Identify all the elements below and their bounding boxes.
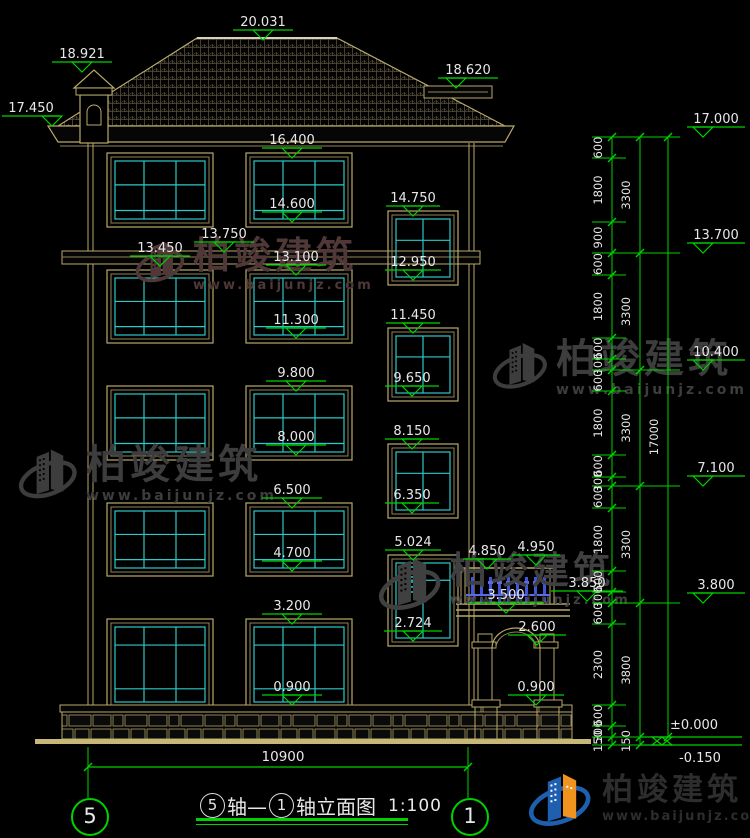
- drawing-title: 5 轴— 1 轴立面图 1:100: [198, 791, 442, 820]
- porch-arch: [492, 628, 540, 648]
- rect: [250, 274, 348, 339]
- window: [246, 153, 352, 227]
- title-seg1: 轴—: [227, 791, 267, 820]
- pier-cap: [534, 700, 562, 707]
- window: [107, 619, 213, 710]
- rect: [246, 503, 352, 576]
- ground-line: [35, 739, 591, 744]
- chimney-cap-roof: [74, 70, 114, 88]
- stair-door: [388, 555, 458, 646]
- window: [107, 153, 213, 227]
- arch-impost: [534, 642, 558, 648]
- rect: [107, 386, 213, 460]
- pier-pedestal: [475, 707, 497, 739]
- window: [107, 386, 213, 460]
- window: [246, 503, 352, 576]
- axis-bubble-1: 1: [451, 798, 489, 836]
- axis-bubble-5: 5: [71, 798, 109, 836]
- rect: [107, 153, 213, 227]
- title-axis-left: 5: [200, 793, 225, 818]
- rect: [250, 623, 348, 706]
- small-window: [388, 328, 458, 401]
- brand-footer: 柏竣建筑 www.baijunjz.com: [528, 768, 750, 830]
- title-scale: 1:100: [388, 796, 442, 816]
- window: [107, 503, 213, 576]
- rect: [107, 619, 213, 710]
- brand-logo-icon: [528, 768, 594, 830]
- window: [246, 386, 352, 460]
- rect: [250, 507, 348, 572]
- rect: [111, 274, 209, 339]
- title-seg2: 轴立面图: [296, 791, 376, 820]
- rect: [111, 157, 209, 223]
- footer-url: www.baijunjz.com: [602, 809, 750, 824]
- building-elevation-linework: [0, 0, 750, 838]
- rect: [246, 619, 352, 710]
- rect: [107, 503, 213, 576]
- rect: [250, 157, 348, 223]
- railing-post: [461, 568, 465, 604]
- roof: [58, 38, 505, 126]
- chimney-cap-band: [76, 88, 112, 95]
- porch-arch-inner: [496, 632, 536, 648]
- footer-brand: 柏竣建筑: [602, 775, 750, 806]
- cad-elevation-drawing: 柏竣建筑 www.baijunjz.com 柏竣建筑 www.baijunjz.…: [0, 0, 750, 838]
- eave-fascia: [48, 126, 514, 142]
- title-underline: [196, 818, 408, 821]
- rect: [111, 507, 209, 572]
- rect: [246, 386, 352, 460]
- door-screen-dots: [398, 564, 416, 594]
- pier-cap: [472, 700, 500, 707]
- title-axis-right: 1: [269, 793, 294, 818]
- rect: [246, 153, 352, 227]
- small-window: [388, 444, 458, 518]
- rect: [107, 270, 213, 343]
- rect: [254, 627, 344, 702]
- rect: [250, 390, 348, 456]
- window: [107, 270, 213, 343]
- rect: [115, 627, 205, 702]
- chimney-body: [80, 95, 108, 143]
- rect: [111, 623, 209, 706]
- title-underline-thin: [196, 824, 408, 825]
- window: [246, 619, 352, 710]
- pier-pedestal: [537, 707, 559, 739]
- window: [246, 270, 352, 343]
- small-window: [388, 211, 458, 285]
- railing-post: [550, 568, 554, 604]
- balcony-railing: [466, 572, 550, 604]
- rect: [111, 390, 209, 456]
- rect: [246, 270, 352, 343]
